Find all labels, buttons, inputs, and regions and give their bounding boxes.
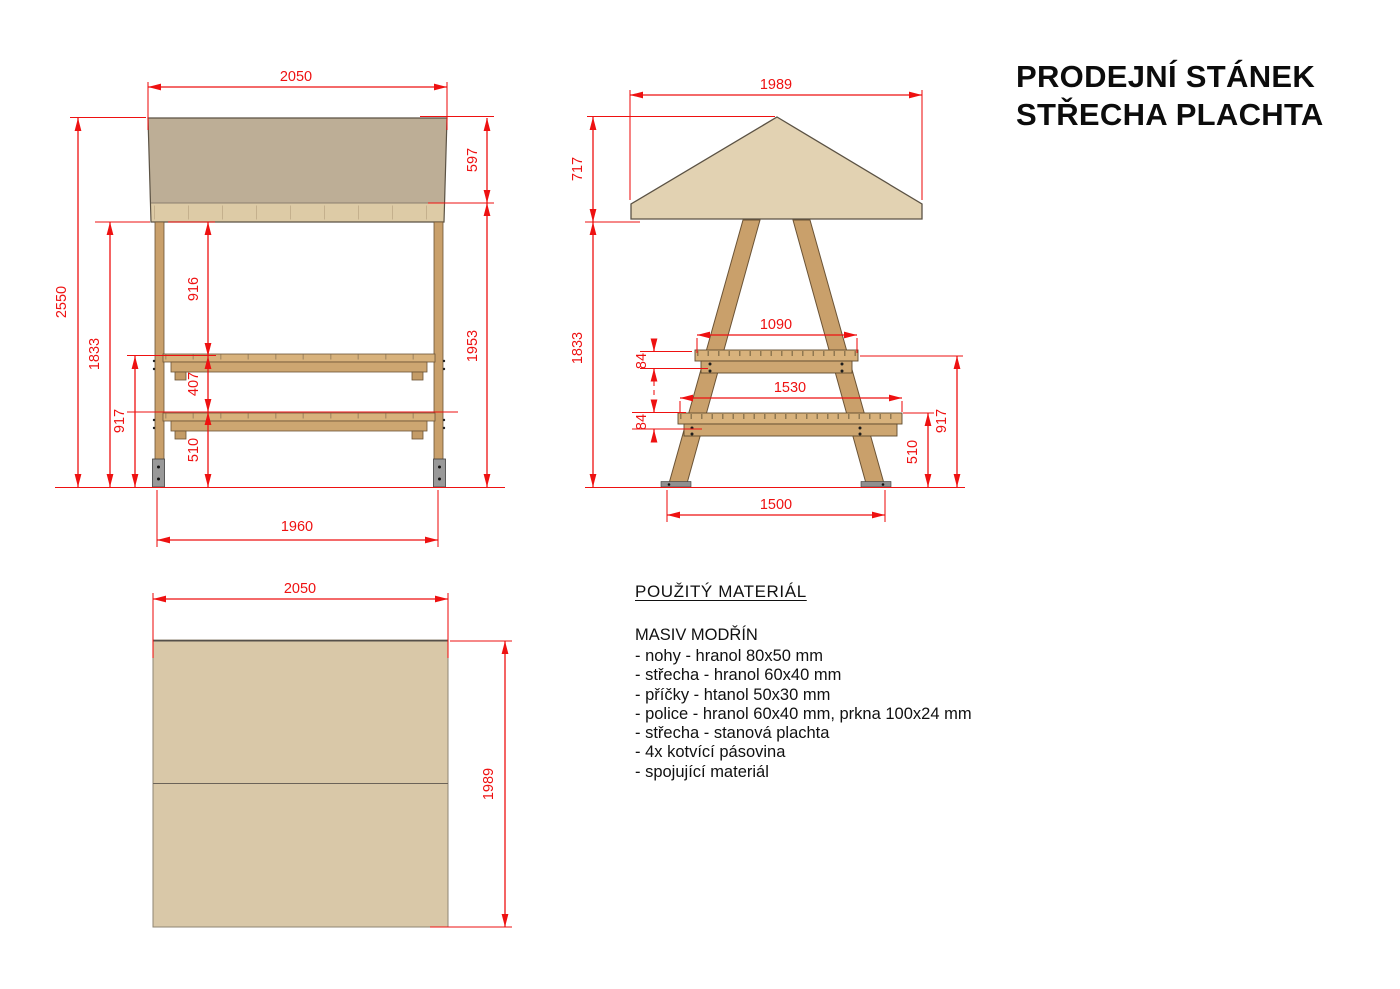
dim-front-shelf-gap: 407 <box>186 372 202 396</box>
side-roof-canvas <box>631 117 922 219</box>
side-anchor-plates <box>661 482 891 488</box>
dim-front-canvas-height: 597 <box>465 148 481 172</box>
material-item: - střecha - stanová plachta <box>635 724 1015 743</box>
drawing-sheet: 2050 597 1953 2550 1833 917 916 407 510 … <box>0 0 1400 989</box>
material-item: - spojující materiál <box>635 763 1015 782</box>
dim-side-lower-shelf-height: 510 <box>905 440 921 464</box>
dim-side-upper-shelf-thickness: 84 <box>634 353 650 369</box>
dim-front-roof-to-shelf: 916 <box>186 277 202 301</box>
materials-heading: POUŽITÝ MATERIÁL <box>635 582 1015 602</box>
dim-side-upper-shelf-height: 917 <box>934 409 950 433</box>
material-item: - police - hranol 60x40 mm, prkna 100x24… <box>635 705 1015 724</box>
dim-side-lower-shelf-length: 1530 <box>774 380 806 396</box>
dim-side-roof-width: 1989 <box>760 77 792 93</box>
front-view <box>148 118 447 487</box>
front-roof-board <box>150 203 445 222</box>
dim-side-upper-shelf-length: 1090 <box>760 317 792 333</box>
dim-side-feet-span: 1500 <box>760 497 792 513</box>
dim-front-frame-height: 1833 <box>87 338 103 370</box>
side-view <box>631 117 922 487</box>
materials-list: POUŽITÝ MATERIÁL MASIV MODŘÍN - nohy - h… <box>635 582 1015 782</box>
front-lower-shelf <box>163 413 435 439</box>
drawing-title-line1: PRODEJNÍ STÁNEK <box>1016 58 1324 96</box>
front-upper-shelf <box>163 354 435 380</box>
dim-plan-width: 2050 <box>284 581 316 597</box>
material-item: - střecha - hranol 60x40 mm <box>635 666 1015 685</box>
plan-view <box>153 640 448 927</box>
materials-subheading: MASIV MODŘÍN <box>635 626 1015 645</box>
dim-plan-depth: 1989 <box>481 768 497 800</box>
front-roof-canvas <box>148 118 447 203</box>
dim-side-lower-shelf-thickness: 84 <box>634 414 650 430</box>
drawing-title-line2: STŘECHA PLACHTA <box>1016 96 1324 134</box>
dim-front-shelf-to-ground: 917 <box>112 409 128 433</box>
drawing-title: PRODEJNÍ STÁNEK STŘECHA PLACHTA <box>1016 58 1324 134</box>
dim-front-roof-width: 2050 <box>280 69 312 85</box>
materials-items: - nohy - hranol 80x50 mm - střecha - hra… <box>635 647 1015 782</box>
dim-front-under-canvas-height: 1953 <box>465 330 481 362</box>
dim-side-frame-height: 1833 <box>570 332 586 364</box>
dim-side-roof-height: 717 <box>570 157 586 181</box>
technical-drawing: 2050 597 1953 2550 1833 917 916 407 510 … <box>0 0 1400 989</box>
side-lower-shelf <box>678 413 902 436</box>
side-upper-shelf <box>695 350 858 373</box>
material-item: - 4x kotvící pásovina <box>635 743 1015 762</box>
dim-front-feet-span: 1960 <box>281 519 313 535</box>
material-item: - příčky - htanol 50x30 mm <box>635 686 1015 705</box>
front-anchor-plates <box>153 459 446 487</box>
material-item: - nohy - hranol 80x50 mm <box>635 647 1015 666</box>
dim-front-total-height: 2550 <box>54 286 70 318</box>
dim-front-lower-shelf-to-ground: 510 <box>186 438 202 462</box>
